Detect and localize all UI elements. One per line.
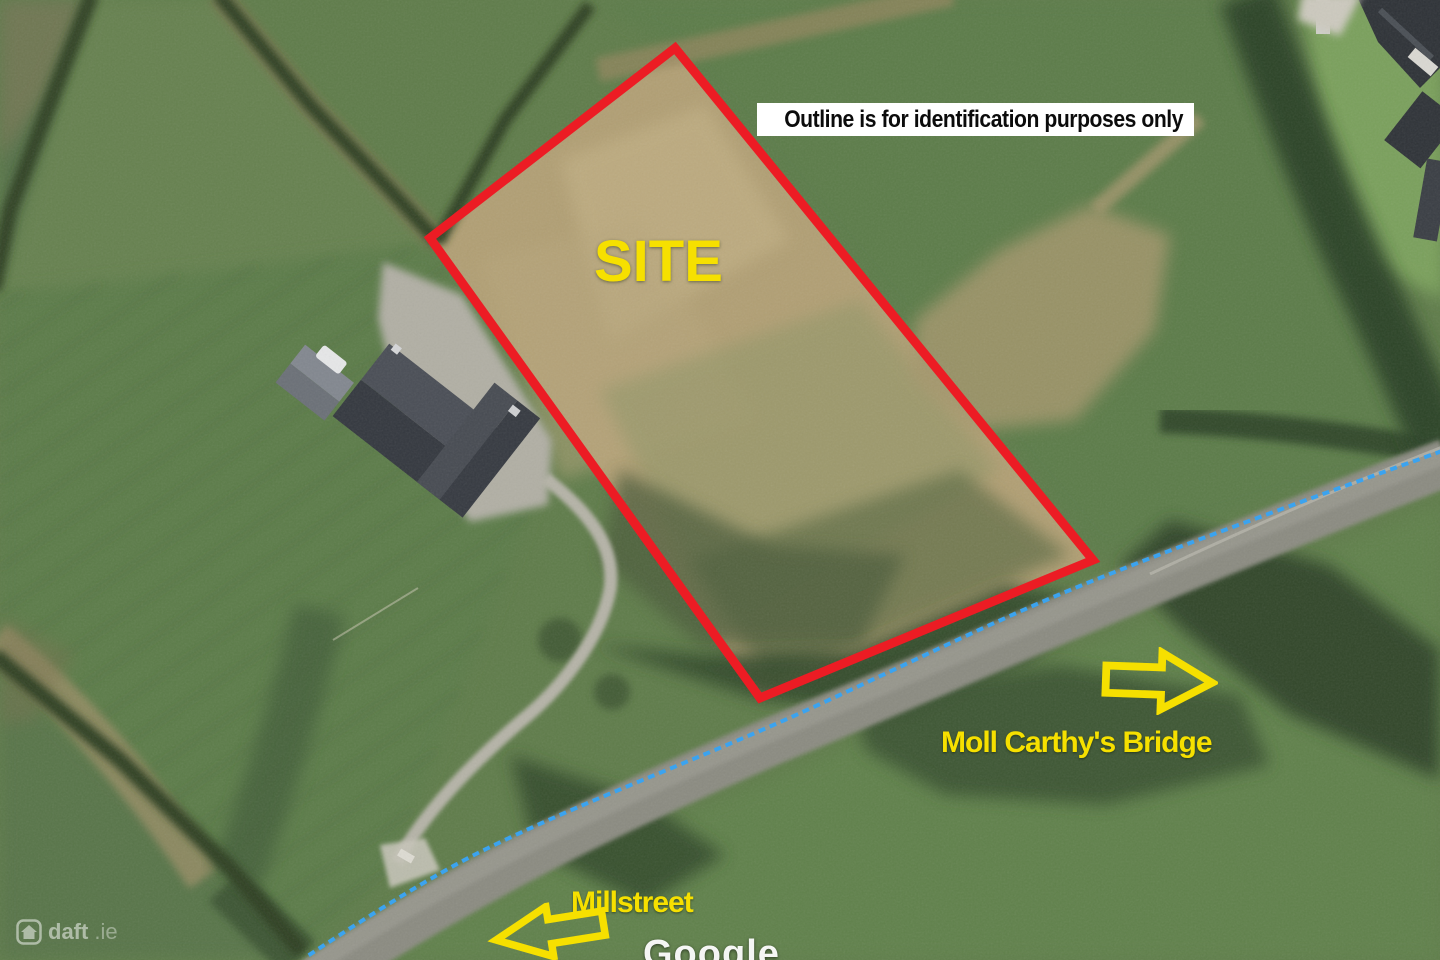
brand-name: daft <box>48 919 88 945</box>
disclaimer-text: Outline is for identification purposes o… <box>784 103 1183 136</box>
photo-grain <box>0 0 1440 960</box>
house-icon <box>16 919 42 945</box>
brand-watermark: daft.ie <box>16 919 118 945</box>
disclaimer-banner: Outline is for identification purposes o… <box>757 103 1194 136</box>
satellite-imagery <box>0 0 1440 960</box>
site-label: SITE <box>594 228 723 295</box>
aerial-photo: Outline is for identification purposes o… <box>0 0 1440 960</box>
brand-tld: .ie <box>94 919 117 945</box>
right-arrow-icon <box>1100 645 1219 717</box>
bridge-label: Moll Carthy's Bridge <box>941 726 1212 760</box>
imagery-watermark: Google <box>643 933 780 960</box>
